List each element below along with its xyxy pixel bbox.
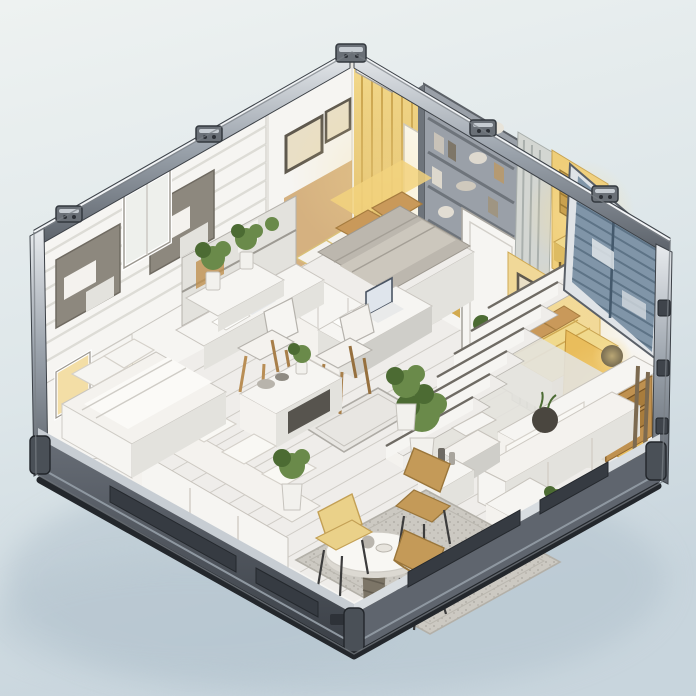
bottle (449, 452, 455, 465)
decor-stone (275, 373, 289, 381)
container-home-illustration (0, 0, 696, 696)
decor-bowl (257, 379, 275, 389)
illustration-canvas (0, 0, 696, 696)
dark-vase (532, 407, 558, 433)
table-decor-bowl (376, 544, 392, 552)
